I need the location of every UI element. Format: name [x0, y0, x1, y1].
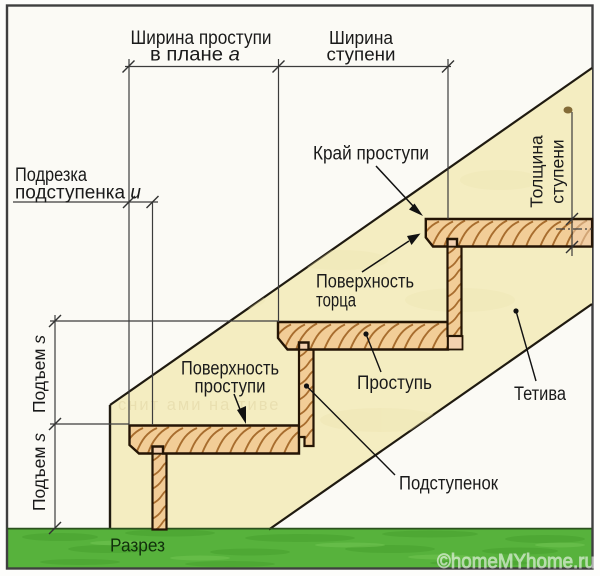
svg-text:Подступенок: Подступенок — [399, 474, 499, 495]
svg-text:Поверхность: Поверхность — [316, 272, 414, 293]
svg-text:Разрез: Разрез — [110, 535, 165, 556]
svg-text:Подъем s: Подъем s — [29, 335, 49, 413]
svg-text:проступи: проступи — [195, 377, 266, 398]
svg-text:Проступь: Проступь — [357, 373, 432, 394]
svg-text:ступени: ступени — [327, 43, 396, 64]
svg-text:Тетива: Тетива — [514, 384, 566, 405]
svg-text:в плане a: в плане a — [150, 43, 240, 65]
svg-text:Подъем s: Подъем s — [29, 433, 49, 511]
svg-text:ступени: ступени — [548, 139, 568, 203]
svg-text:©homeMYhome.ru: ©homeMYhome.ru — [437, 551, 595, 573]
svg-text:Край проступи: Край проступи — [313, 144, 429, 165]
svg-text:подступенка и: подступенка и — [15, 183, 141, 204]
svg-text:Толщина: Толщина — [527, 135, 547, 208]
svg-text:торца: торца — [316, 291, 356, 312]
svg-text:снит ами на тиве: снит ами на тиве — [118, 396, 280, 414]
